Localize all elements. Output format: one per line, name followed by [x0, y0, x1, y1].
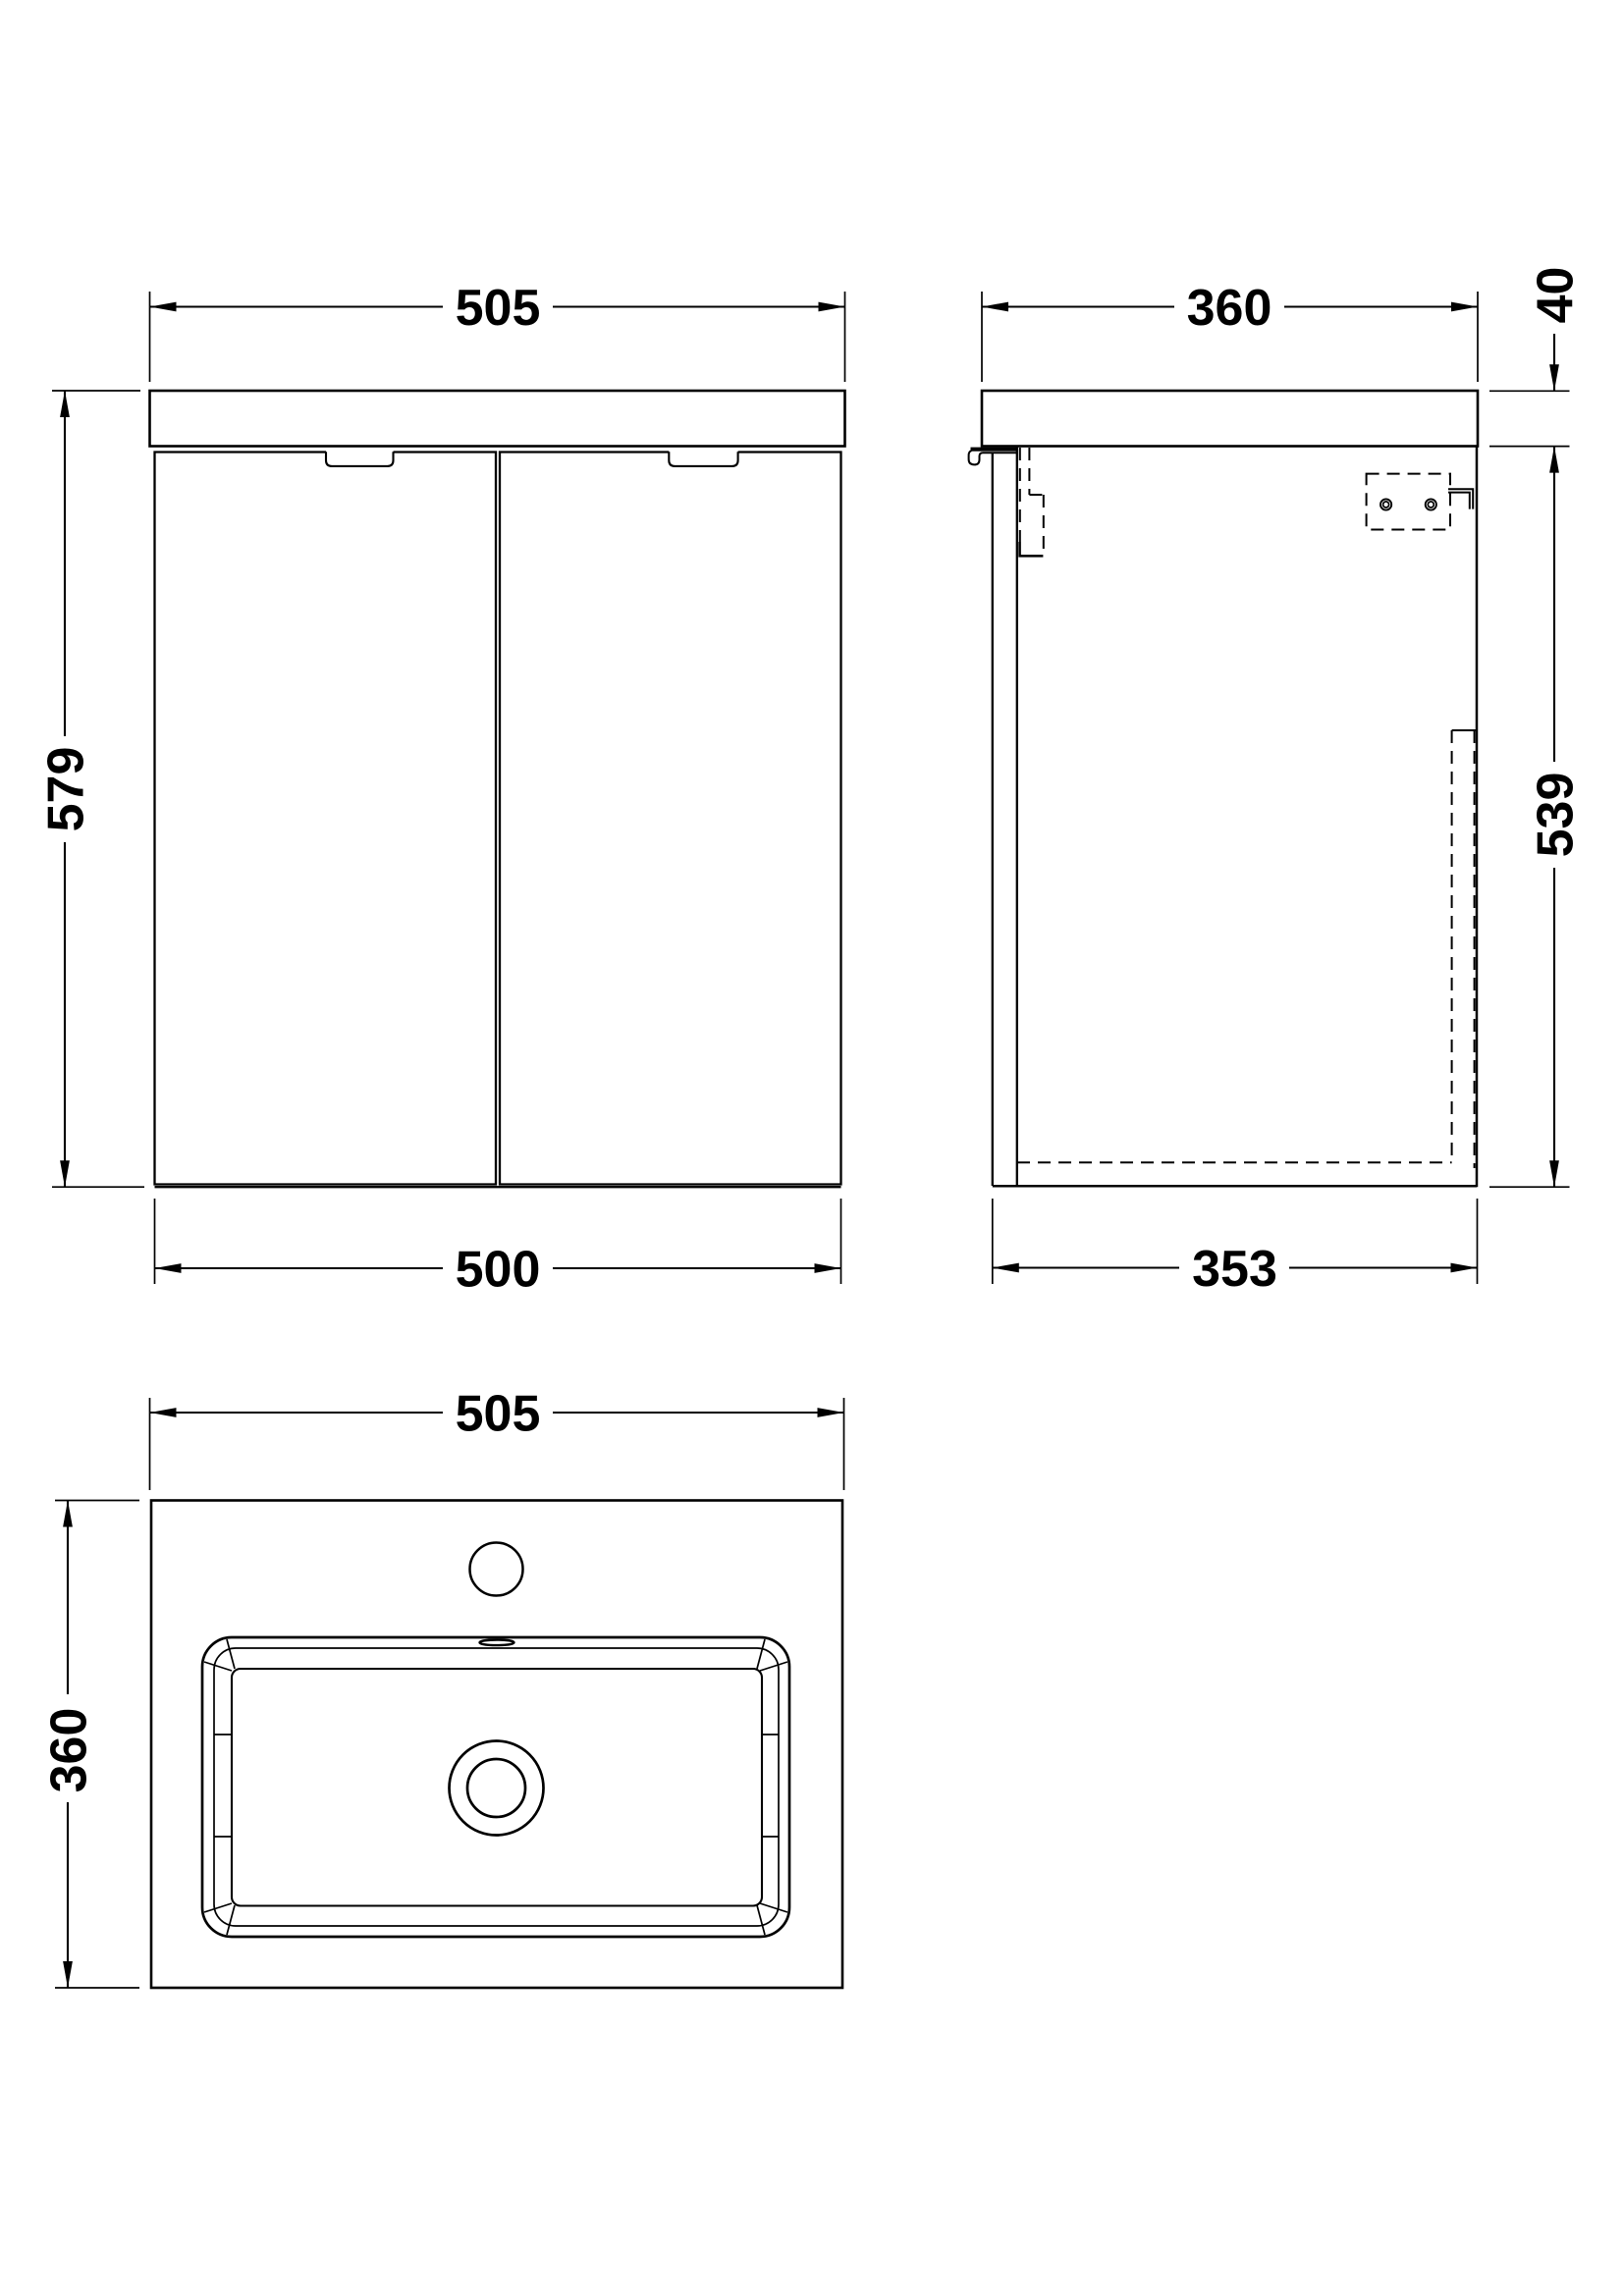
- svg-text:360: 360: [1187, 280, 1272, 337]
- svg-text:579: 579: [38, 747, 95, 832]
- svg-text:353: 353: [1192, 1241, 1277, 1298]
- svg-text:40: 40: [1528, 267, 1585, 324]
- svg-text:360: 360: [41, 1708, 98, 1793]
- svg-text:505: 505: [456, 280, 541, 337]
- svg-text:500: 500: [456, 1242, 541, 1299]
- svg-text:505: 505: [456, 1386, 541, 1443]
- svg-text:539: 539: [1528, 773, 1585, 858]
